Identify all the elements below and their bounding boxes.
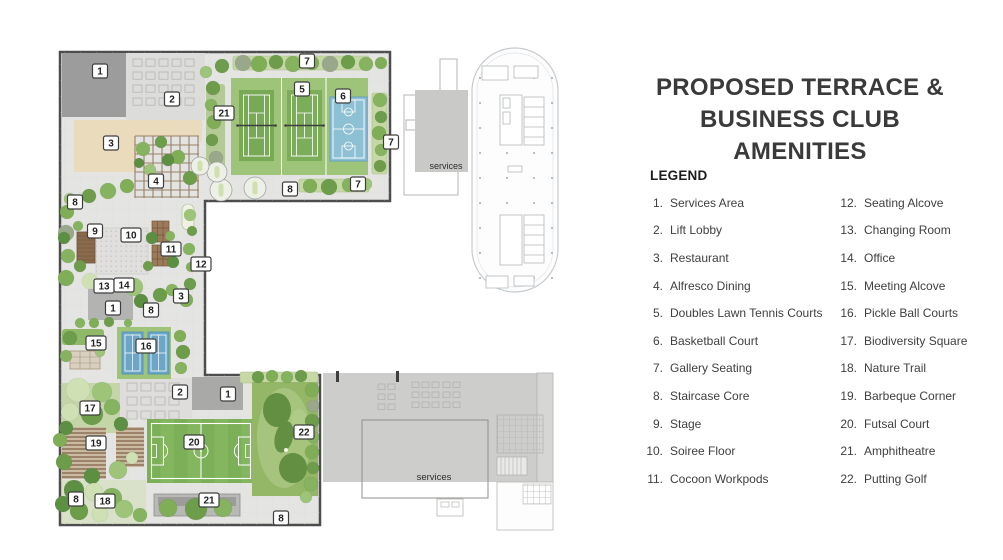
plan-badge-12: 12 <box>191 257 211 271</box>
tower-outline <box>472 48 558 292</box>
legend-item: 5.Doubles Lawn Tennis Courts <box>628 299 823 327</box>
legend-item-label: Stage <box>670 417 701 431</box>
legend-item-label: Restaurant <box>670 251 729 265</box>
legend-item: 15.Meeting Alcove <box>820 272 1003 300</box>
legend-item: 21.Amphitheatre <box>820 437 1003 465</box>
svg-text:7: 7 <box>355 180 361 191</box>
legend-item-number: 12. <box>820 196 857 210</box>
plan-badge-18: 18 <box>95 494 115 508</box>
legend-item: 18.Nature Trail <box>820 355 1003 383</box>
legend-item-number: 18. <box>820 361 857 375</box>
svg-text:7: 7 <box>304 57 310 68</box>
plan-badge-8: 8 <box>68 195 83 209</box>
svg-text:20: 20 <box>188 438 200 449</box>
legend-item-number: 15. <box>820 279 857 293</box>
legend-item: 10.Soiree Floor <box>628 437 823 465</box>
svg-text:10: 10 <box>125 231 137 242</box>
legend-column-1: 1.Services Area2.Lift Lobby3.Restaurant4… <box>628 189 823 493</box>
legend-item: 16.Pickle Ball Courts <box>820 299 1003 327</box>
legend-item: 2.Lift Lobby <box>628 217 823 245</box>
svg-text:14: 14 <box>118 281 130 292</box>
legend-item-label: Basketball Court <box>670 334 758 348</box>
legend-item-label: Putting Golf <box>864 472 927 486</box>
plan-badge-5: 5 <box>295 82 310 96</box>
plan-badge-21: 21 <box>214 106 234 120</box>
svg-text:9: 9 <box>92 227 98 238</box>
plan-badge-21: 21 <box>199 493 219 507</box>
svg-text:5: 5 <box>299 85 305 96</box>
legend-item-label: Barbeque Corner <box>864 389 956 403</box>
plan-badge-7: 7 <box>351 177 366 191</box>
svg-text:16: 16 <box>140 342 152 353</box>
legend-item-label: Soiree Floor <box>670 444 735 458</box>
legend-item-number: 8. <box>628 389 663 403</box>
basketball-court <box>330 97 367 161</box>
legend-item: 7.Gallery Seating <box>628 355 823 383</box>
legend-item: 11.Cocoon Workpods <box>628 465 823 493</box>
legend-item: 6.Basketball Court <box>628 327 823 355</box>
plan-badge-13: 13 <box>94 279 114 293</box>
legend-item-number: 3. <box>628 251 663 265</box>
svg-text:8: 8 <box>278 514 284 525</box>
legend-item: 4.Alfresco Dining <box>628 272 823 300</box>
plan-badge-2: 2 <box>165 92 180 106</box>
legend-item-label: Futsal Court <box>864 417 929 431</box>
svg-text:1: 1 <box>225 390 231 401</box>
legend-item: 13.Changing Room <box>820 217 1003 245</box>
legend-item-label: Office <box>864 251 895 265</box>
plan-badge-16: 16 <box>136 339 156 353</box>
legend-item-label: Alfresco Dining <box>670 279 751 293</box>
services-top-block: services <box>415 90 468 172</box>
legend-item-label: Cocoon Workpods <box>670 472 769 486</box>
legend-item-number: 21. <box>820 444 857 458</box>
legend-item-label: Services Area <box>670 196 744 210</box>
svg-text:17: 17 <box>84 404 96 415</box>
legend-item-label: Doubles Lawn Tennis Courts <box>670 306 823 320</box>
legend-item-number: 19. <box>820 389 857 403</box>
plan-badge-9: 9 <box>88 224 103 238</box>
page: services <box>0 0 1003 560</box>
legend-title: LEGEND <box>650 168 707 183</box>
plan-badge-20: 20 <box>184 435 204 449</box>
plan-badge-19: 19 <box>86 436 106 450</box>
plan-badge-8: 8 <box>283 182 298 196</box>
legend-item-number: 13. <box>820 223 857 237</box>
plan-badge-6: 6 <box>336 89 351 103</box>
legend-item: 19.Barbeque Corner <box>820 382 1003 410</box>
legend-item-number: 1. <box>628 196 663 210</box>
tennis-court-2 <box>284 90 325 161</box>
plan-badge-1: 1 <box>221 387 236 401</box>
legend-item-number: 7. <box>628 361 663 375</box>
legend-item: 3.Restaurant <box>628 244 823 272</box>
svg-text:3: 3 <box>108 139 114 150</box>
svg-text:8: 8 <box>148 306 154 317</box>
svg-text:2: 2 <box>169 95 175 106</box>
legend-item-label: Nature Trail <box>864 361 926 375</box>
legend-item: 22.Putting Golf <box>820 465 1003 493</box>
legend-item-label: Staircase Core <box>670 389 749 403</box>
legend-item-label: Changing Room <box>864 223 951 237</box>
legend-item: 12.Seating Alcove <box>820 189 1003 217</box>
legend-item-number: 4. <box>628 279 663 293</box>
legend-item-label: Pickle Ball Courts <box>864 306 958 320</box>
legend-item-number: 11. <box>628 472 663 486</box>
svg-text:11: 11 <box>166 245 177 256</box>
plan-badge-2: 2 <box>173 385 188 399</box>
plan-badge-7: 7 <box>300 54 315 68</box>
site-plan: services <box>0 0 600 560</box>
svg-text:3: 3 <box>178 292 184 303</box>
plan-badge-15: 15 <box>86 336 106 350</box>
legend-item-label: Gallery Seating <box>670 361 752 375</box>
plan-badge-1: 1 <box>106 301 121 315</box>
plan-badge-1: 1 <box>93 64 108 78</box>
legend-item-label: Amphitheatre <box>864 444 935 458</box>
svg-text:15: 15 <box>90 339 102 350</box>
plan-badge-22: 22 <box>294 425 314 439</box>
legend-item-number: 22. <box>820 472 857 486</box>
svg-text:7: 7 <box>388 138 394 149</box>
svg-text:13: 13 <box>98 282 110 293</box>
svg-text:1: 1 <box>110 304 116 315</box>
svg-text:22: 22 <box>298 428 310 439</box>
plan-badge-8: 8 <box>144 303 159 317</box>
services-bottom-label: services <box>417 472 452 483</box>
services-bottom-block: services <box>323 371 553 530</box>
svg-text:19: 19 <box>90 439 102 450</box>
legend-item-number: 20. <box>820 417 857 431</box>
svg-text:8: 8 <box>73 495 79 506</box>
legend-column-2: 12.Seating Alcove13.Changing Room14.Offi… <box>820 189 1003 493</box>
legend-item-number: 9. <box>628 417 663 431</box>
tennis-court-1 <box>236 90 277 161</box>
legend-item-number: 10. <box>628 444 663 458</box>
legend-item: 9.Stage <box>628 410 823 438</box>
legend-item-label: Lift Lobby <box>670 223 722 237</box>
plan-badge-11: 11 <box>161 242 181 256</box>
legend-item: 1.Services Area <box>628 189 823 217</box>
plan-badge-4: 4 <box>149 174 164 188</box>
plan-badge-8: 8 <box>69 492 84 506</box>
legend-item: 20.Futsal Court <box>820 410 1003 438</box>
legend-item-number: 14. <box>820 251 857 265</box>
legend-item: 17.Biodiversity Square <box>820 327 1003 355</box>
plan-badge-7: 7 <box>384 135 399 149</box>
legend-item-label: Meeting Alcove <box>864 279 945 293</box>
legend-item-number: 2. <box>628 223 663 237</box>
legend-item-number: 6. <box>628 334 663 348</box>
futsal-court <box>147 419 255 483</box>
legend-item-label: Biodiversity Square <box>864 334 967 348</box>
svg-text:21: 21 <box>218 109 230 120</box>
svg-text:4: 4 <box>153 177 159 188</box>
plan-badge-14: 14 <box>114 278 134 292</box>
svg-text:21: 21 <box>203 496 215 507</box>
page-title: PROPOSED TERRACE & BUSINESS CLUB AMENITI… <box>635 72 965 168</box>
svg-text:6: 6 <box>340 92 346 103</box>
plan-badge-3: 3 <box>104 136 119 150</box>
svg-text:18: 18 <box>99 497 111 508</box>
legend-item: 14.Office <box>820 244 1003 272</box>
svg-text:1: 1 <box>97 67 103 78</box>
svg-text:8: 8 <box>287 185 293 196</box>
legend-item-number: 16. <box>820 306 857 320</box>
legend-item-label: Seating Alcove <box>864 196 943 210</box>
plan-badge-10: 10 <box>121 228 141 242</box>
plan-badge-17: 17 <box>80 401 100 415</box>
services-top-label: services <box>429 161 463 171</box>
plan-badge-3: 3 <box>174 289 189 303</box>
legend-item: 8.Staircase Core <box>628 382 823 410</box>
svg-text:2: 2 <box>177 388 183 399</box>
legend-item-number: 5. <box>628 306 663 320</box>
svg-text:12: 12 <box>195 260 207 271</box>
plan-badge-8: 8 <box>274 511 289 525</box>
legend-item-number: 17. <box>820 334 857 348</box>
svg-text:8: 8 <box>72 198 78 209</box>
